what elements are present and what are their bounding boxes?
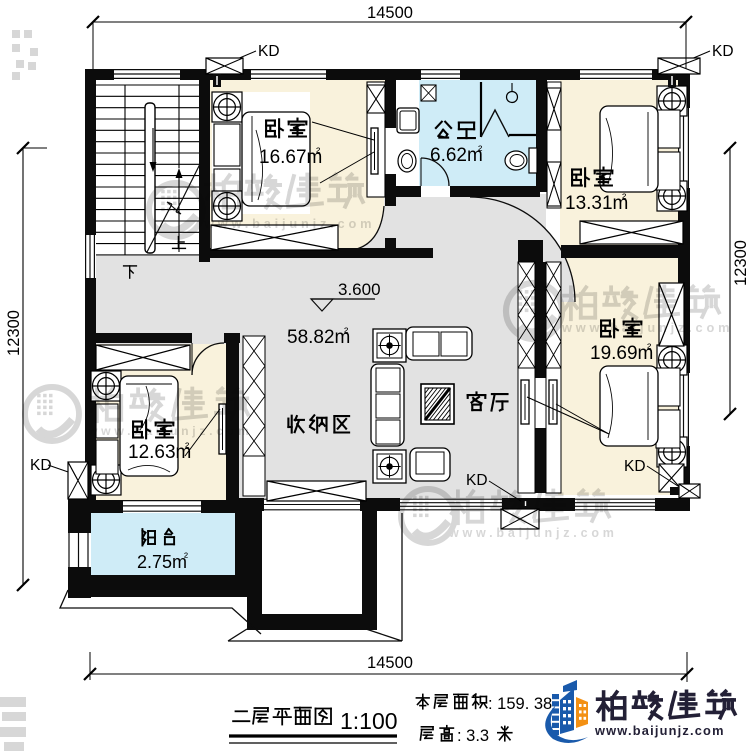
svg-text:14500: 14500 xyxy=(367,654,413,672)
svg-text:KD: KD xyxy=(624,458,646,475)
svg-text:16.67m: 16.67m xyxy=(259,147,322,168)
svg-text:²: ² xyxy=(344,324,349,339)
svg-text:www.baijunjz.com: www.baijunjz.com xyxy=(594,723,725,738)
svg-text:www.baijunjz.com: www.baijunjz.com xyxy=(448,526,618,540)
svg-text:14500: 14500 xyxy=(367,4,413,22)
svg-text:²: ² xyxy=(622,190,627,205)
svg-text:1:100: 1:100 xyxy=(340,708,398,734)
svg-text:58.82m: 58.82m xyxy=(287,327,350,348)
svg-text:19.69m: 19.69m xyxy=(590,343,653,364)
svg-text:6.62m: 6.62m xyxy=(430,145,483,166)
svg-text:²: ² xyxy=(647,340,652,355)
svg-text:3.600: 3.600 xyxy=(338,280,381,299)
svg-text:12.63m: 12.63m xyxy=(128,442,191,463)
svg-text:KD: KD xyxy=(712,43,734,60)
svg-text:: 159. 38: : 159. 38 xyxy=(488,695,552,713)
svg-text:www.baijunjz.com: www.baijunjz.com xyxy=(203,216,375,231)
svg-text:²: ² xyxy=(184,550,188,564)
svg-text:²: ² xyxy=(316,144,321,159)
svg-text:²: ² xyxy=(185,439,190,454)
svg-text:2.75m: 2.75m xyxy=(137,552,187,572)
svg-text:12300: 12300 xyxy=(5,310,23,356)
svg-text:: 3.3: : 3.3 xyxy=(457,727,489,745)
svg-text:www.baijunjz.com: www.baijunjz.com xyxy=(561,320,733,335)
svg-text:²: ² xyxy=(478,142,483,157)
svg-text:KD: KD xyxy=(258,43,280,60)
svg-text:13.31m: 13.31m xyxy=(565,193,628,214)
svg-text:KD: KD xyxy=(466,472,488,489)
svg-text:www.baijunjz.com: www.baijunjz.com xyxy=(87,424,252,438)
svg-text:12300: 12300 xyxy=(732,240,750,286)
